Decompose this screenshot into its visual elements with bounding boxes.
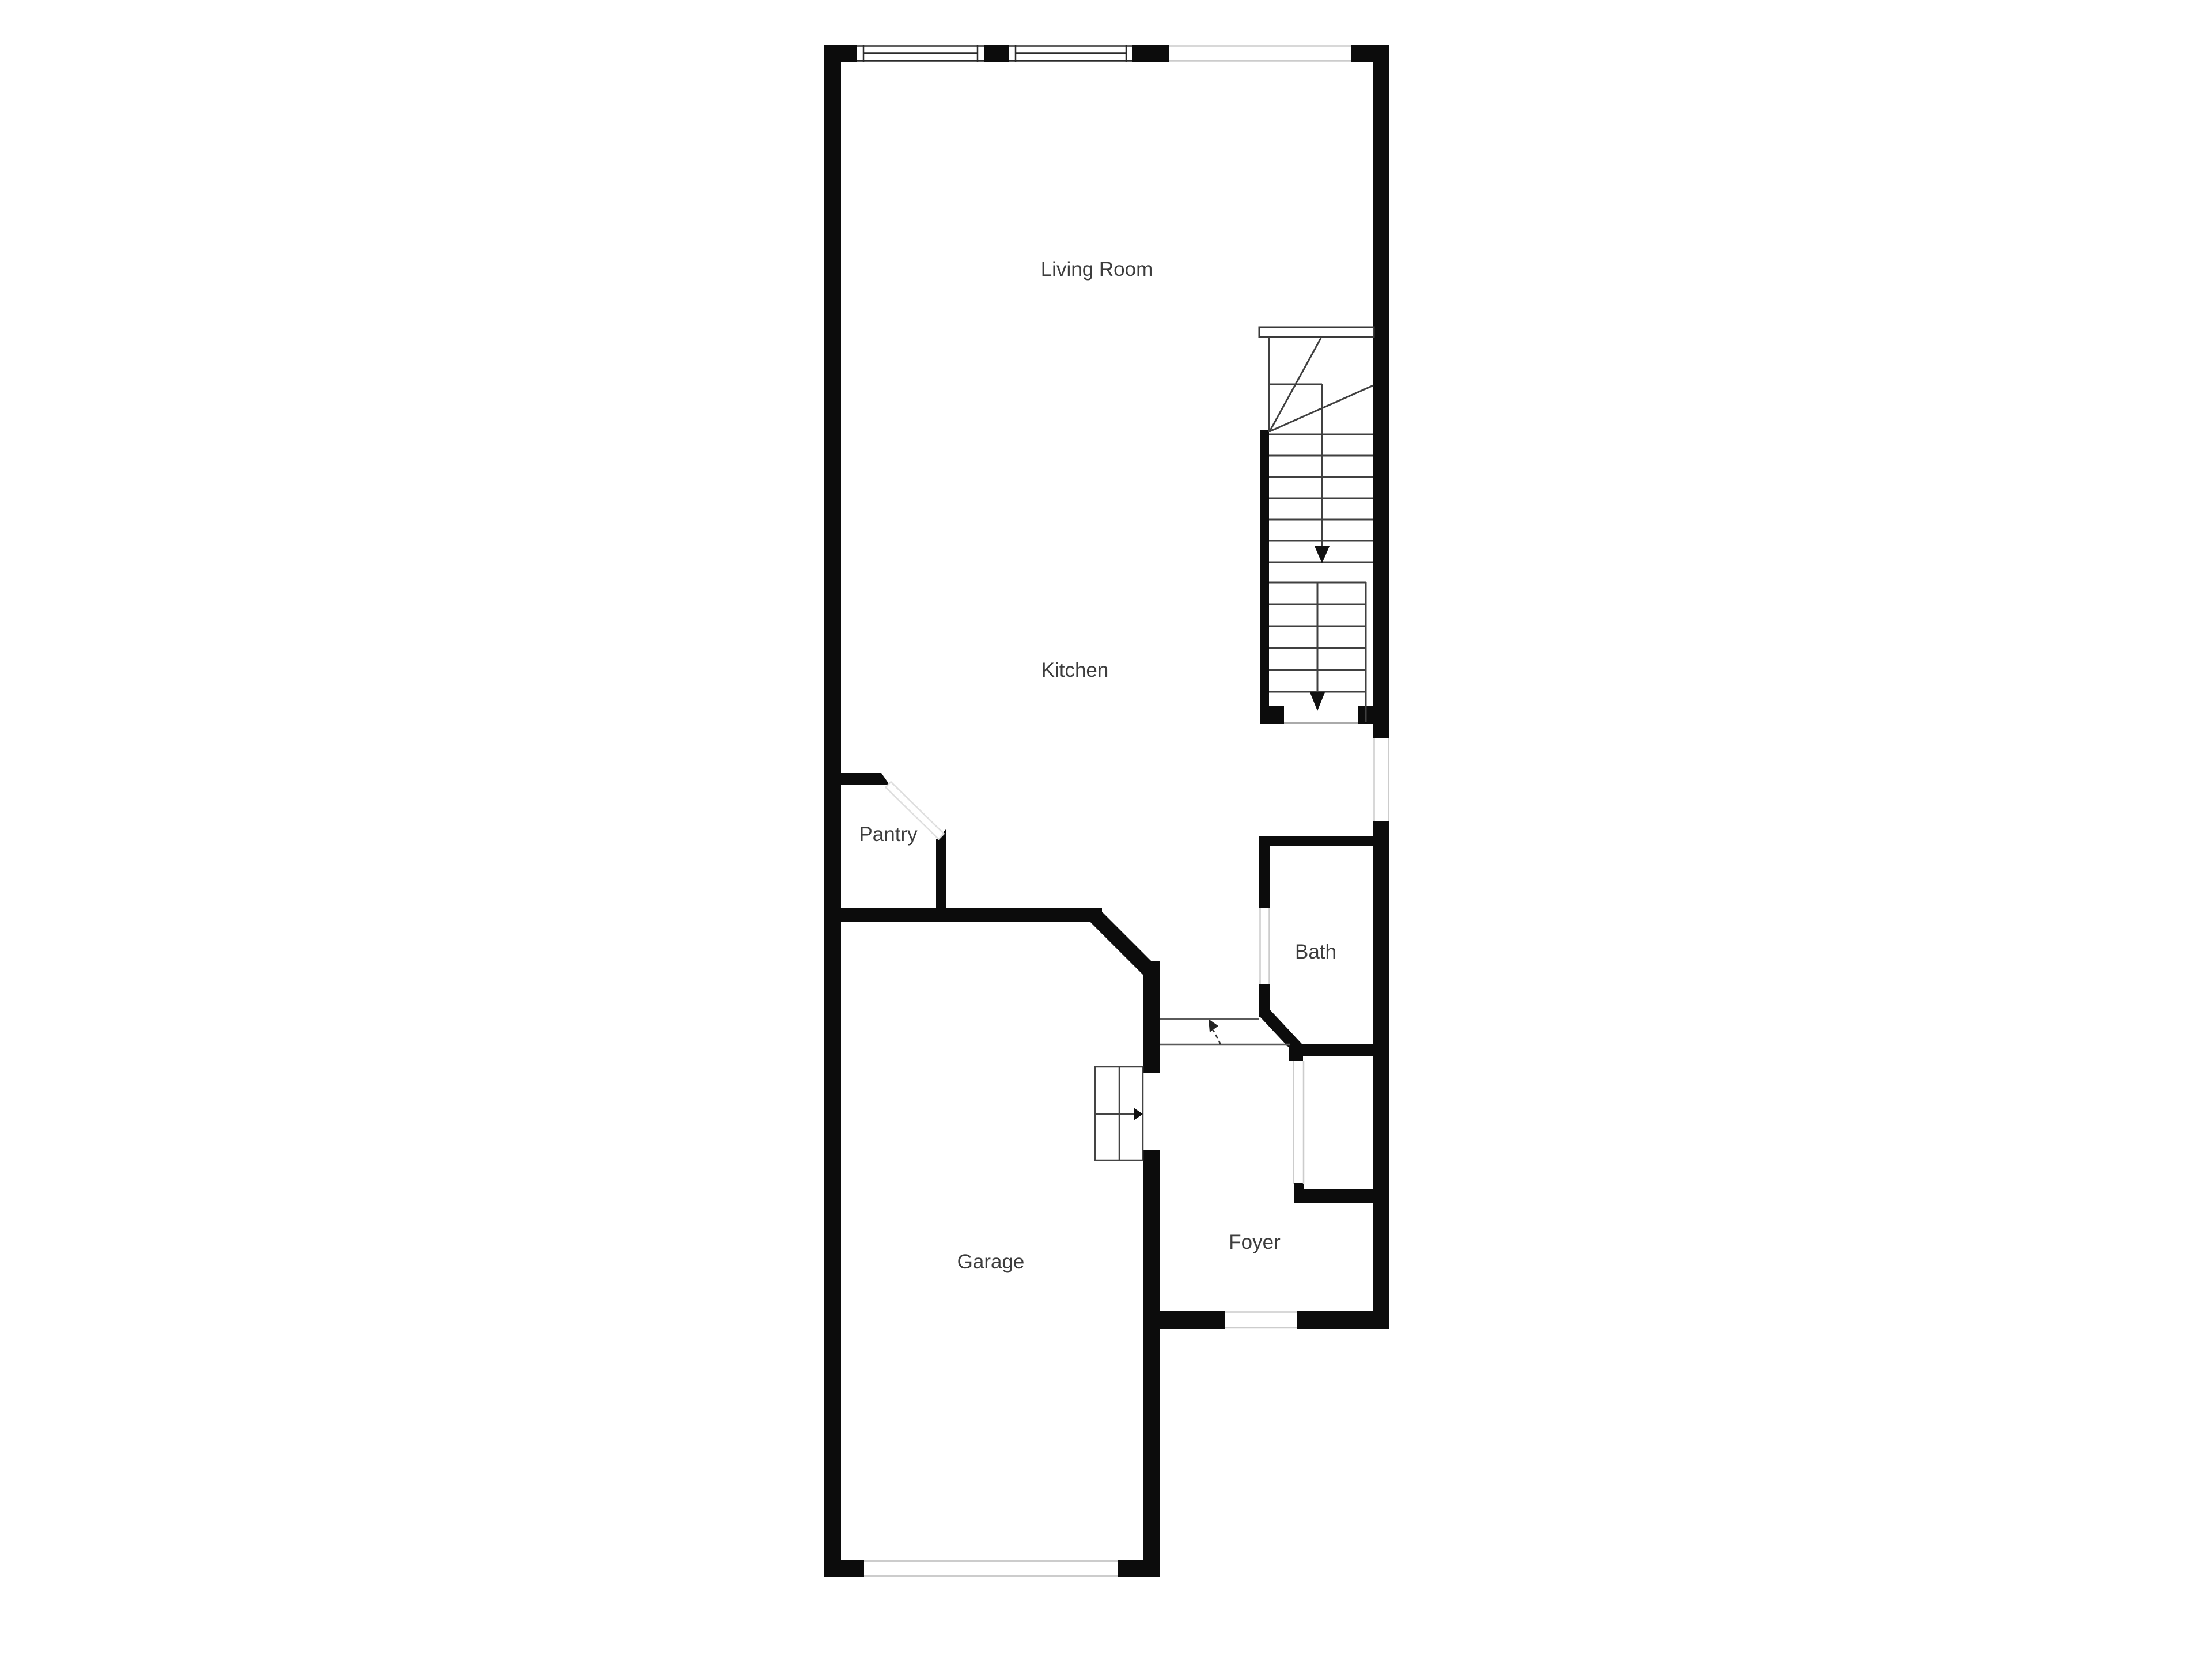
svg-text:Living Room: Living Room [1041, 258, 1153, 281]
svg-text:Kitchen: Kitchen [1041, 659, 1109, 681]
svg-text:Foyer: Foyer [1229, 1231, 1281, 1253]
svg-text:Pantry: Pantry [859, 823, 918, 846]
svg-text:Garage: Garage [957, 1251, 1025, 1273]
svg-text:Bath: Bath [1295, 941, 1336, 963]
